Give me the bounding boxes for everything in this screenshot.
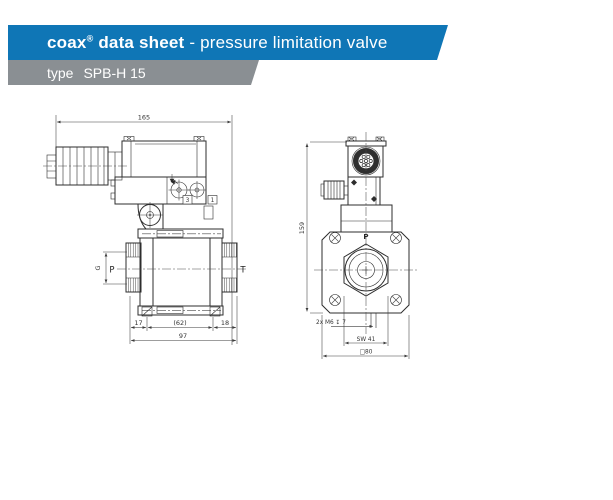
mounting-bracket (137, 202, 213, 229)
dim-bottom-chain: 17 (62) 18 97 (130, 296, 237, 344)
dim-165-label: 165 (138, 114, 150, 122)
dim-97-label: 97 (179, 332, 187, 340)
adjust-direction-arrow-icon (170, 174, 178, 185)
valve-neck (341, 205, 392, 232)
screw-diamond-icon (351, 180, 357, 186)
square80-label: □80 (360, 350, 373, 356)
dim-159-label: 159 (298, 222, 306, 234)
valve-body (138, 229, 223, 316)
port-boss-left (126, 243, 141, 292)
mounting-hole-icon (330, 233, 341, 244)
dim-g-label: G (94, 265, 102, 270)
sw41-label: SW 41 (357, 337, 376, 343)
port-p-label: P (109, 266, 114, 276)
mounting-hole-icon (391, 295, 402, 306)
side-view: 165 (43, 114, 247, 346)
pilot-head (122, 137, 206, 178)
front-view: 159 (298, 132, 418, 359)
port-t-label: T (239, 266, 246, 276)
tapped-holes-label: 2x M6 ↧ 7 (316, 320, 346, 326)
adjustment-block: 3 1 (111, 174, 217, 204)
mounting-hole-icon (330, 295, 341, 306)
pilot-body (348, 177, 380, 205)
dim-62-label: (62) (173, 319, 186, 327)
callout-1-label: 1 (211, 198, 215, 204)
mounting-hole-icon (391, 233, 402, 244)
adjustment-knob (321, 181, 348, 199)
dim-17-label: 17 (134, 319, 142, 327)
technical-drawing: 165 (0, 0, 613, 500)
dim-18-label: 18 (221, 319, 229, 327)
datasheet-page: coax® data sheet - pressure limitation v… (0, 0, 613, 500)
dim-tapped-holes: 2x M6 ↧ 7 (316, 313, 376, 328)
callout-3-label: 3 (186, 198, 190, 204)
port-boss-right (222, 243, 237, 292)
